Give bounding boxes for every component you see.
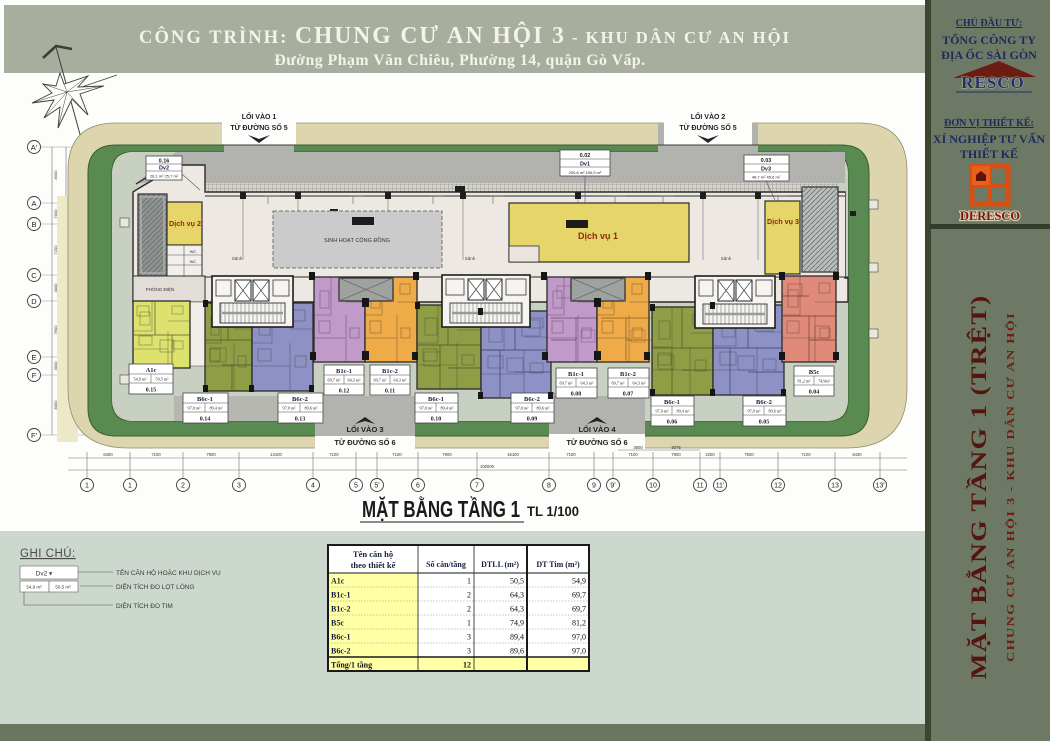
svg-text:1: 1: [128, 483, 132, 490]
svg-text:LỐI VÀO 4: LỐI VÀO 4: [578, 424, 616, 434]
svg-text:B5c: B5c: [331, 619, 344, 628]
svg-text:Dv2 ▾: Dv2 ▾: [36, 571, 53, 578]
svg-text:7900: 7900: [206, 452, 216, 457]
svg-text:16100: 16100: [507, 452, 519, 457]
svg-text:2: 2: [467, 591, 471, 600]
svg-text:THIẾT KẾ: THIẾT KẾ: [960, 146, 1018, 161]
svg-text:8: 8: [547, 483, 551, 490]
svg-text:LỐI VÀO 3: LỐI VÀO 3: [346, 424, 383, 434]
svg-text:11: 11: [696, 483, 703, 490]
svg-text:0.13: 0.13: [295, 417, 306, 423]
svg-text:8000: 8000: [53, 170, 58, 180]
svg-text:7100: 7100: [392, 452, 402, 457]
svg-text:B6c-2: B6c-2: [331, 647, 351, 656]
svg-text:Dv1: Dv1: [580, 162, 590, 168]
svg-text:B5c: B5c: [809, 369, 820, 376]
svg-text:7100: 7100: [566, 452, 576, 457]
svg-text:ĐƠN VỊ THIẾT KẾ:: ĐƠN VỊ THIẾT KẾ:: [944, 116, 1034, 129]
svg-text:5: 5: [354, 483, 358, 490]
svg-text:7900: 7900: [671, 452, 681, 457]
svg-text:Dịch vụ 3: Dịch vụ 3: [767, 219, 799, 226]
svg-text:1: 1: [467, 619, 471, 628]
svg-text:CHUNG CƯ AN HỘI 3 - KHU DÂN CƯ: CHUNG CƯ AN HỘI 3 - KHU DÂN CƯ AN HỘI: [1004, 312, 1017, 662]
svg-text:Số căn/tầng: Số căn/tầng: [426, 560, 466, 569]
svg-text:2: 2: [467, 605, 471, 614]
svg-text:9: 9: [592, 483, 596, 490]
svg-text:B6c-2: B6c-2: [756, 399, 772, 406]
svg-text:64,3: 64,3: [510, 605, 524, 614]
svg-text:DIỆN TÍCH ĐO LỌT LÒNG: DIỆN TÍCH ĐO LỌT LÒNG: [116, 582, 195, 591]
svg-text:50,5: 50,5: [510, 577, 524, 586]
svg-text:MẶT BẰNG TẦNG 1 (TRỆT): MẶT BẰNG TẦNG 1 (TRỆT): [966, 295, 991, 680]
svg-text:13': 13': [875, 483, 884, 490]
svg-text:A: A: [31, 199, 36, 208]
svg-text:0.09: 0.09: [527, 417, 538, 423]
svg-text:DTLL (m²): DTLL (m²): [481, 560, 519, 569]
svg-text:B6c-2: B6c-2: [524, 396, 540, 403]
svg-text:74,9: 74,9: [510, 619, 524, 628]
svg-text:11': 11': [716, 483, 725, 490]
svg-text:B6c-1: B6c-1: [197, 396, 213, 403]
svg-text:RESCO: RESCO: [961, 73, 1025, 92]
svg-text:50,5 m²: 50,5 m²: [55, 585, 71, 590]
svg-text:1: 1: [467, 577, 471, 586]
svg-text:B1c-2: B1c-2: [620, 371, 636, 378]
svg-text:7100: 7100: [801, 452, 811, 457]
svg-text:DIỆN TÍCH ĐO TIM: DIỆN TÍCH ĐO TIM: [116, 601, 173, 610]
svg-text:0.12: 0.12: [339, 389, 350, 395]
svg-text:2: 2: [181, 483, 185, 490]
svg-text:F': F': [31, 431, 38, 440]
svg-text:64,3: 64,3: [510, 591, 524, 600]
svg-text:0.06: 0.06: [667, 420, 678, 426]
svg-text:14100: 14100: [270, 452, 282, 457]
svg-text:SINH HOẠT CỘNG ĐỒNG: SINH HOẠT CỘNG ĐỒNG: [324, 237, 390, 244]
svg-text:12: 12: [774, 483, 782, 490]
svg-text:E: E: [31, 353, 36, 362]
svg-text:89,4: 89,4: [510, 633, 524, 642]
svg-text:89,6: 89,6: [510, 647, 524, 656]
svg-text:48,7 m² 45,6 m²: 48,7 m² 45,6 m²: [752, 175, 781, 180]
svg-text:B1c-2: B1c-2: [382, 368, 398, 375]
svg-text:Đường Phạm Văn Chiêu, Phường 1: Đường Phạm Văn Chiêu, Phường 14, quận Gò…: [274, 52, 645, 69]
svg-text:97,0: 97,0: [572, 633, 586, 642]
svg-text:7100: 7100: [151, 452, 161, 457]
svg-text:0.07: 0.07: [623, 392, 634, 398]
svg-text:10: 10: [649, 483, 657, 490]
svg-text:Sảnh: Sảnh: [465, 256, 476, 261]
svg-text:DT Tim (m²): DT Tim (m²): [536, 560, 580, 569]
svg-text:A1c: A1c: [331, 577, 345, 586]
svg-text:3: 3: [467, 633, 471, 642]
svg-text:3600: 3600: [633, 445, 643, 450]
svg-text:7900: 7900: [442, 452, 452, 457]
svg-text:Dịch vụ 1: Dịch vụ 1: [578, 231, 618, 241]
svg-text:D: D: [31, 297, 37, 306]
svg-text:TÊN CĂN HỘ HOẶC KHU DỊCH VỤ: TÊN CĂN HỘ HOẶC KHU DỊCH VỤ: [116, 568, 221, 577]
svg-text:TỪ ĐƯỜNG SỐ 6: TỪ ĐƯỜNG SỐ 6: [566, 437, 627, 447]
svg-text:6430: 6430: [852, 452, 862, 457]
svg-text:TỪ ĐƯỜNG SỐ 6: TỪ ĐƯỜNG SỐ 6: [334, 437, 395, 447]
svg-text:54,9: 54,9: [572, 577, 586, 586]
svg-text:A1c: A1c: [146, 367, 157, 374]
svg-text:Tên căn hộ: Tên căn hộ: [353, 549, 393, 559]
svg-text:0.05: 0.05: [759, 420, 770, 426]
svg-text:0.11: 0.11: [385, 389, 395, 395]
svg-text:Dv2: Dv2: [159, 166, 169, 172]
svg-text:XÍ NGHIỆP TƯ VẤN: XÍ NGHIỆP TƯ VẤN: [933, 131, 1045, 146]
svg-text:WC: WC: [190, 259, 197, 264]
svg-text:PHÒNG ĐIỆN: PHÒNG ĐIỆN: [146, 285, 175, 292]
svg-text:3: 3: [467, 647, 471, 656]
svg-text:7: 7: [475, 483, 479, 490]
svg-text:DERESCO: DERESCO: [960, 208, 1020, 223]
svg-text:B6c-1: B6c-1: [428, 396, 444, 403]
svg-text:100000: 100000: [480, 464, 495, 469]
svg-text:0.16: 0.16: [159, 159, 170, 165]
svg-text:7100: 7100: [329, 452, 339, 457]
svg-text:0.03: 0.03: [761, 158, 772, 164]
svg-text:9': 9': [610, 483, 615, 490]
svg-text:B1c-1: B1c-1: [331, 591, 351, 600]
svg-text:B6c-2: B6c-2: [292, 396, 308, 403]
svg-text:13: 13: [831, 483, 839, 490]
svg-text:2200: 2200: [705, 452, 715, 457]
svg-text:7100: 7100: [628, 452, 638, 457]
svg-text:0.02: 0.02: [580, 153, 591, 159]
svg-text:F: F: [32, 371, 37, 380]
svg-text:Tổng/1 tầng: Tổng/1 tầng: [331, 661, 372, 670]
svg-text:97,0: 97,0: [572, 647, 586, 656]
svg-text:Sảnh: Sảnh: [721, 256, 732, 261]
svg-text:7500: 7500: [744, 452, 754, 457]
svg-text:0.10: 0.10: [431, 417, 442, 423]
svg-text:TL 1/100: TL 1/100: [527, 503, 579, 519]
svg-text:69,7: 69,7: [572, 591, 586, 600]
svg-text:MẶT BẰNG TẦNG 1: MẶT BẰNG TẦNG 1: [362, 495, 520, 522]
svg-text:Dv3: Dv3: [761, 167, 771, 173]
svg-text:5': 5': [374, 483, 379, 490]
svg-text:TỔNG CÔNG TY: TỔNG CÔNG TY: [942, 32, 1036, 47]
svg-text:B6c-1: B6c-1: [664, 399, 680, 406]
svg-text:54,9 m²: 54,9 m²: [26, 585, 42, 590]
svg-text:0.14: 0.14: [200, 417, 211, 423]
svg-text:12: 12: [463, 661, 471, 670]
svg-text:Sảnh: Sảnh: [232, 256, 243, 261]
svg-text:6400: 6400: [103, 452, 113, 457]
svg-text:C: C: [31, 271, 37, 280]
svg-text:B1c-1: B1c-1: [568, 371, 584, 378]
svg-text:B6c-1: B6c-1: [331, 633, 351, 642]
svg-text:Dịch vụ 2: Dịch vụ 2: [169, 221, 201, 228]
svg-text:3: 3: [237, 483, 241, 490]
svg-text:4: 4: [311, 483, 315, 490]
svg-text:B: B: [31, 220, 36, 229]
svg-text:200,6 m² 190,9 m²: 200,6 m² 190,9 m²: [569, 170, 602, 175]
svg-text:CHỦ ĐẦU TƯ:: CHỦ ĐẦU TƯ:: [956, 16, 1023, 29]
svg-text:69,7: 69,7: [572, 605, 586, 614]
svg-text:B1c-1: B1c-1: [336, 368, 352, 375]
svg-text:0.08: 0.08: [571, 392, 582, 398]
svg-text:GHI CHÚ:: GHI CHÚ:: [20, 547, 76, 560]
svg-text:26,1 m² 25,7 m²: 26,1 m² 25,7 m²: [150, 174, 179, 179]
svg-text:A': A': [31, 143, 38, 152]
svg-text:0.15: 0.15: [146, 388, 157, 394]
svg-text:ĐỊA ỐC SÀI GÒN: ĐỊA ỐC SÀI GÒN: [941, 47, 1037, 62]
svg-text:theo thiết kế: theo thiết kế: [351, 560, 397, 570]
svg-text:6: 6: [416, 483, 420, 490]
svg-text:3075: 3075: [671, 445, 681, 450]
svg-text:1: 1: [85, 483, 89, 490]
svg-text:81,2: 81,2: [572, 619, 586, 628]
svg-text:B1c-2: B1c-2: [331, 605, 351, 614]
svg-text:WC: WC: [190, 249, 197, 254]
svg-text:0.04: 0.04: [809, 390, 820, 396]
